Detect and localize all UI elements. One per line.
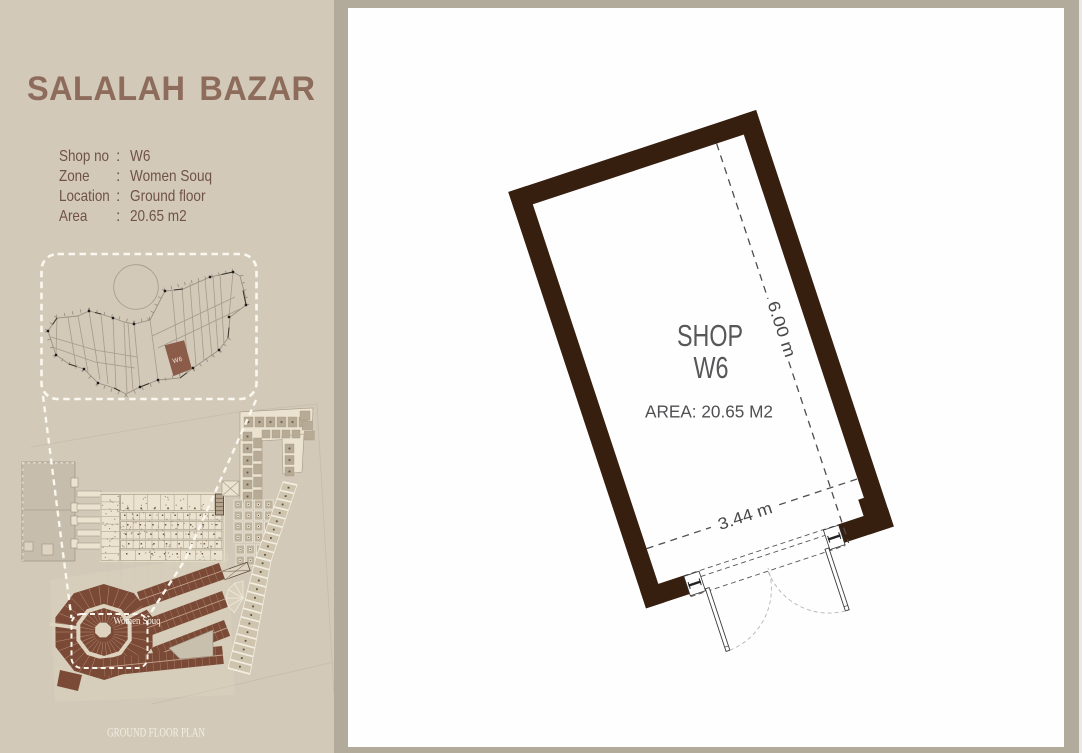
svg-text:SHOP: SHOP [677,318,743,353]
svg-text:AREA: 20.65 M2: AREA: 20.65 M2 [645,402,773,422]
svg-text:W6: W6 [694,350,729,385]
